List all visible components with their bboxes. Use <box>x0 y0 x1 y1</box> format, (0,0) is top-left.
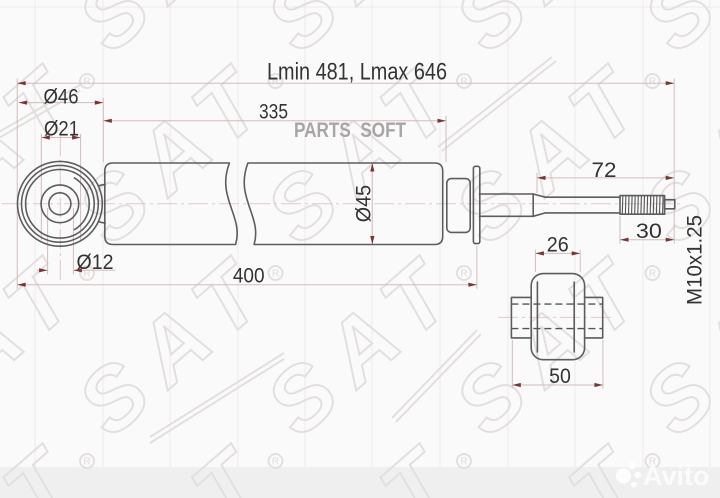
svg-text:72: 72 <box>592 159 617 182</box>
svg-text:PARTS SOFT: PARTS SOFT <box>294 119 406 142</box>
svg-text:Ø45: Ø45 <box>353 185 376 222</box>
svg-text:30: 30 <box>636 220 662 243</box>
svg-text:Avito: Avito <box>643 461 710 491</box>
svg-text:Ø46: Ø46 <box>44 86 79 109</box>
svg-text:Ø12: Ø12 <box>77 251 114 274</box>
svg-text:Lmin 481, Lmax 646: Lmin 481, Lmax 646 <box>267 59 447 86</box>
svg-text:26: 26 <box>547 233 569 256</box>
svg-text:335: 335 <box>259 101 288 124</box>
svg-text:Ø21: Ø21 <box>44 118 79 141</box>
svg-text:50: 50 <box>549 365 571 388</box>
svg-text:400: 400 <box>233 265 265 288</box>
svg-text:M10x1.25: M10x1.25 <box>684 215 707 305</box>
